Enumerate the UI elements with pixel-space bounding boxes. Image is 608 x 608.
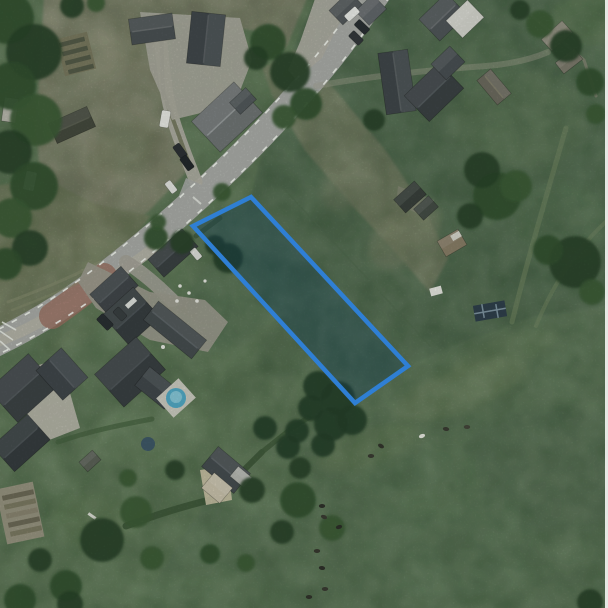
aerial-canvas [0, 0, 608, 608]
aerial-map-view[interactable] [0, 0, 608, 608]
